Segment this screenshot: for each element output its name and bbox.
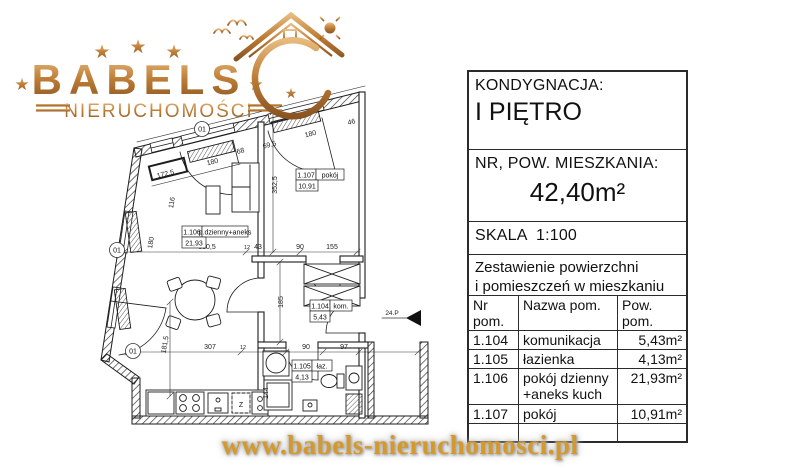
kitchen-counter: Z (146, 390, 268, 416)
window-marker: 01 (195, 122, 210, 137)
toilet (321, 374, 344, 388)
room-label-1106: 1.106 p.dzienny+aneks 21,93 (182, 226, 252, 248)
table-header-name: Nazwa pom. (519, 296, 618, 331)
room-area: 5,43 (313, 315, 327, 322)
website-url: www.babels-nieruchomosci.pl (150, 430, 650, 461)
table-title-section: Zestawienie powierzchni i pomieszczeń w … (469, 254, 686, 295)
area-table: Nr pom. Nazwa pom. Pow. pom. 1.104 komun… (469, 295, 686, 441)
dimension-label: 43 (254, 244, 262, 251)
star-icon: ★ (14, 75, 29, 94)
table-cell-area: 4,13m² (618, 350, 686, 369)
dimension-label: 185 (278, 296, 285, 308)
dimension-label: 180 (147, 236, 156, 249)
table-cell-name: komunikacja (519, 331, 618, 350)
dining-chair (165, 315, 181, 330)
table-title-line1: Zestawienie powierzchni (475, 259, 680, 278)
floor-drain (303, 400, 317, 411)
area-value: 42,40m² (475, 177, 680, 208)
window (150, 138, 174, 153)
brand-logo: ★ ★ ★ ★ ★ ★ BABELS NIERUCHOMOŚCI (14, 14, 344, 122)
entrance-marker: 24.P (382, 310, 421, 326)
table-header-area: Pow. pom. (618, 296, 686, 331)
radiator (346, 394, 362, 414)
scale-label: SKALA 1:100 (475, 227, 680, 245)
flyer: Z (0, 0, 800, 468)
area-label: NR, POW. MIESZKANIA: (475, 155, 680, 173)
washbasin (263, 351, 289, 376)
window-marker-label: 01 (113, 248, 121, 255)
dimension-label: 68 (236, 147, 245, 156)
logo-rule (36, 104, 70, 107)
table-cell-name: pokój dzienny +aneks kuch (519, 369, 618, 405)
floor-label: KONDYGNACJA: (475, 77, 680, 95)
dimension-label: 352,5 (272, 176, 279, 194)
room-name: kom. (333, 304, 348, 311)
logo-brand-text: BABELS (32, 56, 247, 103)
info-panel: KONDYGNACJA: I PIĘTRO NR, POW. MIESZKANI… (467, 70, 688, 443)
room-id: 1.105 (293, 364, 311, 371)
dimension-label: 181,5 (161, 335, 171, 354)
room-area: 21,93 (185, 241, 203, 248)
room-id: 1.104 (311, 304, 329, 311)
table-cell-nr: 1.107 (469, 405, 519, 424)
window-marker: 01 (126, 344, 141, 359)
dimension-label: 155 (326, 244, 338, 251)
coffee-table (206, 186, 220, 214)
room-name: pokój (322, 173, 339, 180)
scale-section: SKALA 1:100 (469, 221, 686, 254)
dimension-label: 12 (240, 345, 246, 351)
star-icon: ★ (285, 85, 298, 101)
stove (176, 392, 204, 414)
table-cell-nr: 1.104 (469, 331, 519, 350)
dimension-label: 307 (204, 344, 216, 351)
room-label-1107: 1.107 pokój 10,91 (296, 169, 344, 191)
logo-subtitle-text: NIERUCHOMOŚCI (64, 100, 254, 122)
furniture: Z (146, 163, 362, 416)
entrance-label: 24.P (385, 310, 398, 317)
birds-icon (214, 20, 253, 39)
floor-section: KONDYGNACJA: I PIĘTRO (469, 72, 686, 149)
dimension-label: 90 (296, 244, 304, 251)
sun-icon (316, 14, 344, 42)
dimension-label: 144 (263, 387, 270, 399)
room-label-1104: 1.104 kom. 5,43 (310, 300, 352, 322)
table-header-nr: Nr pom. (469, 296, 519, 331)
wall-left-lower (132, 378, 140, 418)
dimension-label: 97 (340, 344, 348, 351)
table-cell-name: łazienka (519, 350, 618, 369)
table-title-line2: i pomieszczeń w mieszkaniu (475, 278, 680, 297)
area-section: NR, POW. MIESZKANIA: 42,40m² (469, 149, 686, 221)
room-name: p.dzienny+aneks (199, 230, 252, 237)
window-marker-label: 01 (198, 127, 206, 134)
wall-shaft (368, 342, 374, 418)
dimension-label: 116 (168, 197, 177, 209)
room-name: łaz. (317, 364, 328, 371)
table-cell-name: pokój (519, 405, 618, 424)
washing-machine (346, 366, 362, 390)
dimension-label: 180 (206, 158, 219, 168)
floor-value: I PIĘTRO (475, 98, 680, 127)
table-cell-area: 5,43m² (618, 331, 686, 350)
star-icon: ★ (129, 37, 146, 58)
radiator (114, 288, 130, 329)
table-cell-nr: 1.105 (469, 350, 519, 369)
sofa (232, 163, 259, 212)
entrance-arrow-icon (406, 310, 421, 326)
dishwasher-label: Z (239, 402, 244, 409)
room-area: 4,13 (295, 375, 309, 382)
wall-right-lower (420, 342, 428, 418)
window-marker: 01 (110, 243, 125, 258)
dimension-label: 46 (347, 118, 356, 127)
dimension-label: 180 (304, 130, 317, 140)
floor-plan: Z (101, 86, 428, 424)
table-cell-nr: 1.106 (469, 369, 519, 405)
room-area: 10,91 (298, 184, 316, 191)
table-cell-area: 21,93m² (618, 369, 686, 405)
window-marker-label: 01 (129, 349, 137, 356)
table-cell-area: 10,91m² (618, 405, 686, 424)
dimension-label: 90 (302, 344, 310, 351)
logo-rule (36, 109, 70, 112)
room-id: 1.107 (297, 173, 315, 180)
dimension-label: 12 (244, 245, 250, 251)
wall-bottom (132, 416, 428, 424)
door (227, 278, 261, 312)
kitchen-sink (208, 393, 228, 413)
windows (107, 101, 324, 328)
dishwasher: Z (232, 393, 250, 413)
swoosh (255, 40, 328, 116)
